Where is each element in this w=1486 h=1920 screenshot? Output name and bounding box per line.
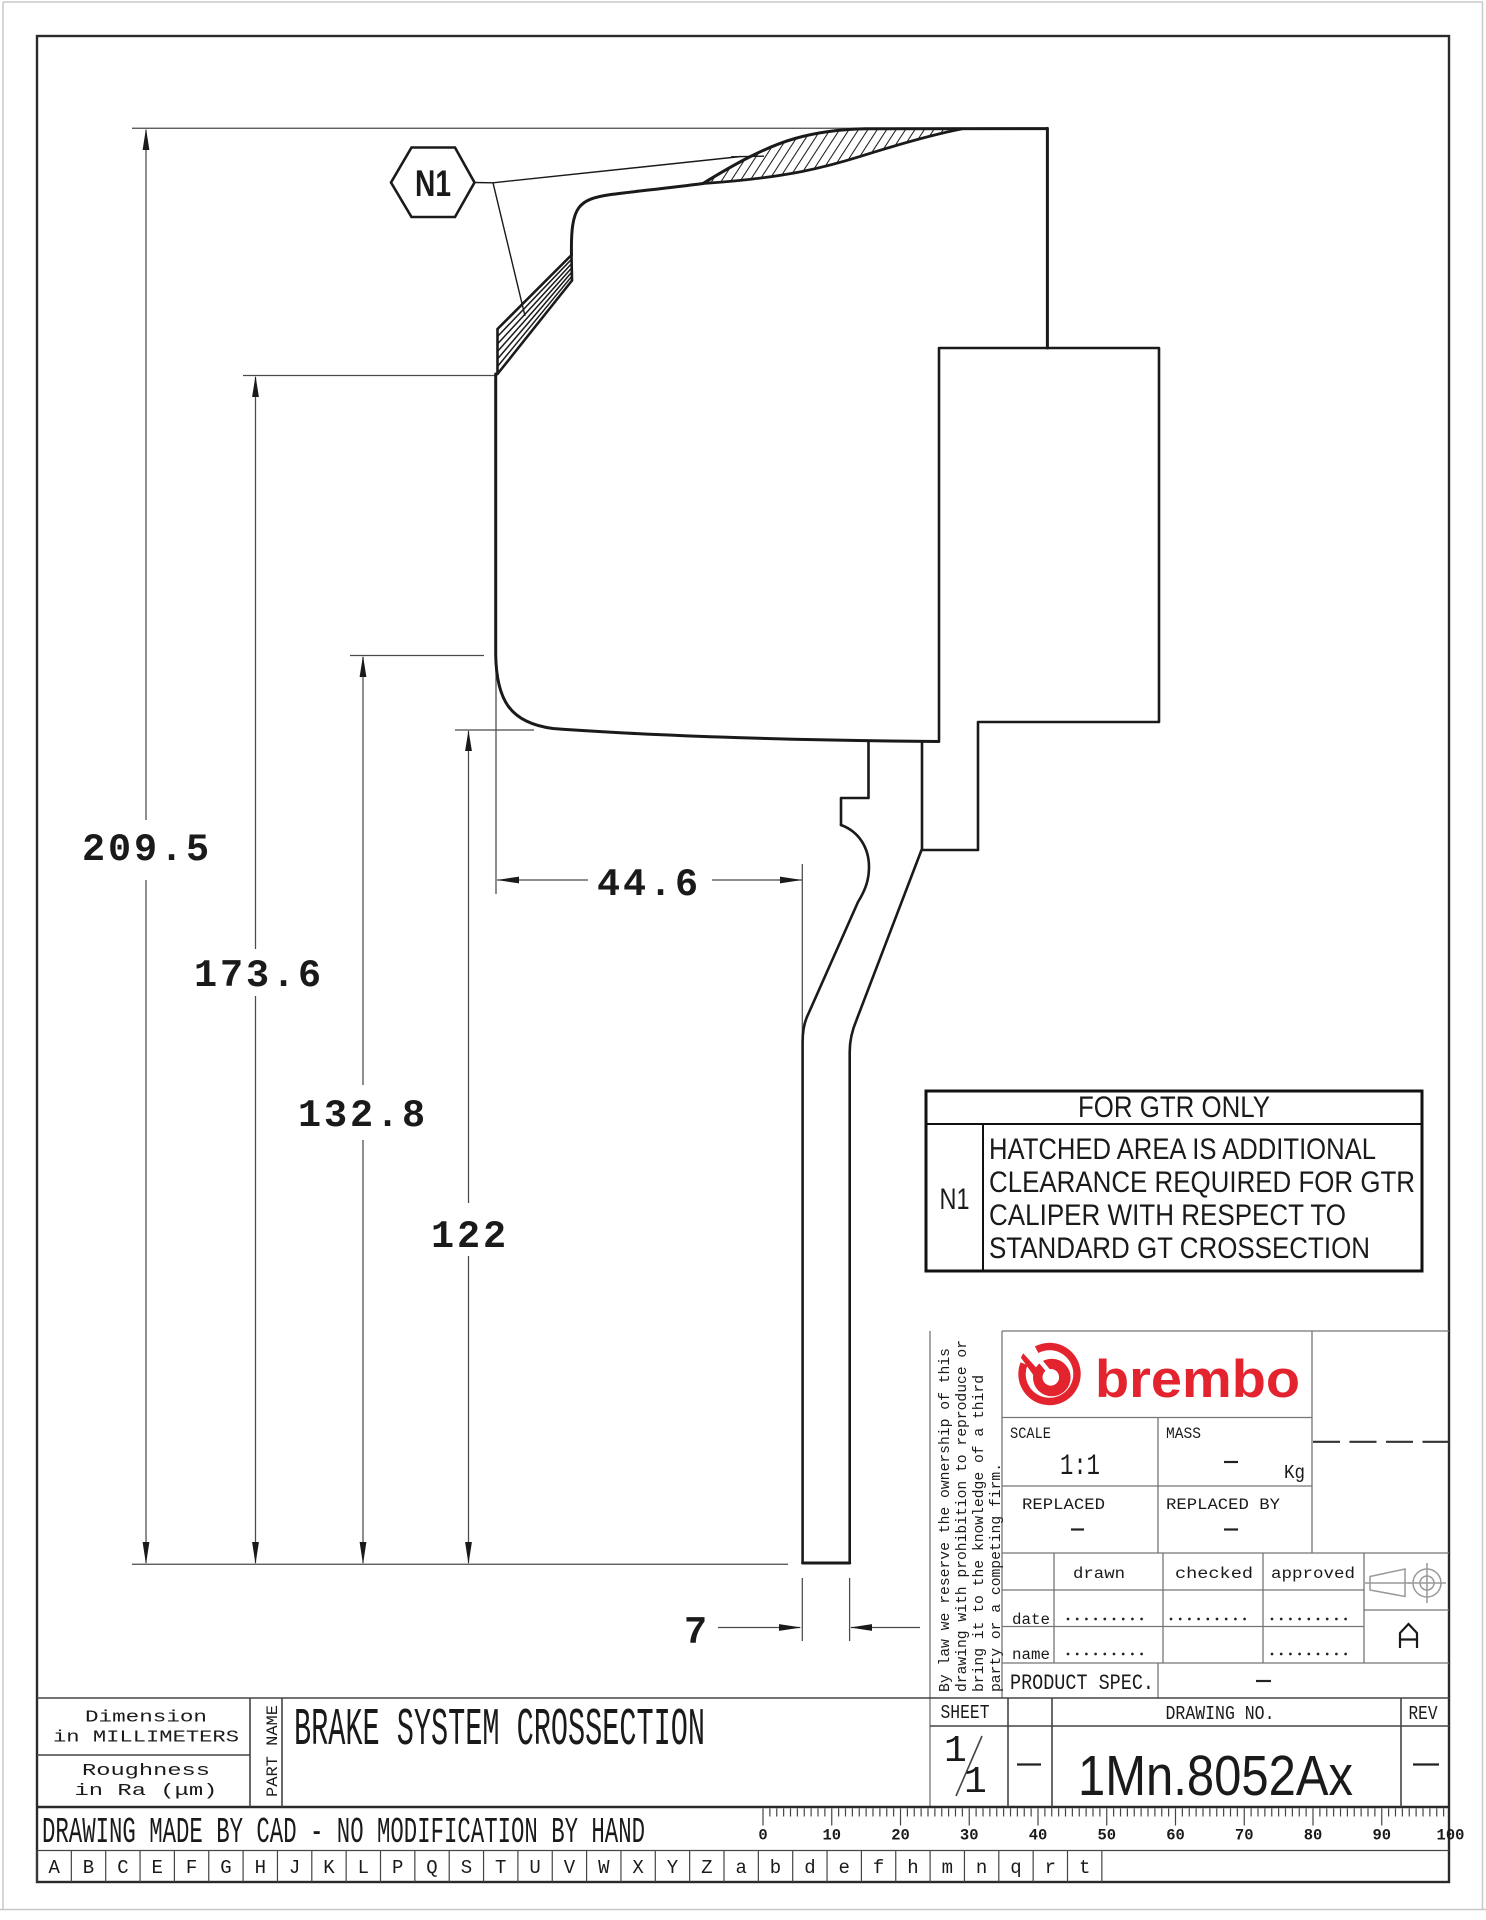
svg-text:209.5: 209.5 xyxy=(82,828,212,872)
svg-text:REPLACED: REPLACED xyxy=(1022,1496,1105,1514)
svg-text:44.6: 44.6 xyxy=(597,863,701,907)
svg-text:W: W xyxy=(598,1857,610,1879)
svg-text:DRAWING MADE BY CAD - NO MODIF: DRAWING MADE BY CAD - NO MODIFICATION BY… xyxy=(42,1812,645,1853)
svg-text:S: S xyxy=(461,1857,472,1879)
svg-text:By law we reserve the ownershi: By law we reserve the ownership of this xyxy=(938,1348,954,1692)
svg-text:40: 40 xyxy=(1029,1827,1048,1845)
svg-text:m: m xyxy=(942,1857,953,1879)
svg-text:122: 122 xyxy=(431,1215,509,1259)
svg-text:REV: REV xyxy=(1409,1703,1438,1725)
svg-text:f: f xyxy=(873,1857,884,1879)
svg-text:132.8: 132.8 xyxy=(298,1094,428,1138)
svg-text:SCALE: SCALE xyxy=(1010,1425,1051,1443)
svg-text:h: h xyxy=(907,1857,918,1879)
svg-text:Y: Y xyxy=(667,1857,679,1879)
svg-text:P: P xyxy=(392,1857,403,1879)
svg-text:E: E xyxy=(151,1857,162,1879)
svg-text:70: 70 xyxy=(1235,1827,1254,1845)
svg-text:t: t xyxy=(1079,1857,1090,1879)
svg-text:HATCHED AREA IS ADDITIONAL: HATCHED AREA IS ADDITIONAL xyxy=(989,1133,1376,1166)
svg-text:in Ra (μm): in Ra (μm) xyxy=(75,1782,218,1801)
svg-text:U: U xyxy=(529,1857,540,1879)
svg-text:q: q xyxy=(1010,1857,1021,1879)
svg-text:K: K xyxy=(323,1857,335,1879)
svg-text:A: A xyxy=(48,1857,60,1879)
svg-text:approved: approved xyxy=(1271,1565,1355,1583)
svg-text:PRODUCT SPEC.: PRODUCT SPEC. xyxy=(1010,1671,1154,1696)
svg-text:N1: N1 xyxy=(415,162,451,204)
svg-text:BRAKE SYSTEM CROSSECTION: BRAKE SYSTEM CROSSECTION xyxy=(294,1700,705,1760)
svg-text:name: name xyxy=(1012,1646,1050,1664)
svg-text:DRAWING NO.: DRAWING NO. xyxy=(1166,1703,1275,1725)
svg-text:173.6: 173.6 xyxy=(194,954,324,998)
svg-text:V: V xyxy=(564,1857,576,1879)
svg-text:CLEARANCE REQUIRED FOR GTR: CLEARANCE REQUIRED FOR GTR xyxy=(989,1166,1415,1199)
svg-text:drawn: drawn xyxy=(1073,1565,1125,1583)
svg-text:STANDARD GT CROSSECTION: STANDARD GT CROSSECTION xyxy=(989,1232,1370,1265)
svg-text:G: G xyxy=(220,1857,231,1879)
svg-text:date: date xyxy=(1012,1611,1050,1629)
svg-text:bring it to the knowledge of a: bring it to the knowledge of a third xyxy=(972,1375,988,1692)
svg-text:C: C xyxy=(117,1857,128,1879)
svg-text:d: d xyxy=(804,1857,815,1879)
svg-text:Dimension: Dimension xyxy=(85,1709,207,1728)
svg-text:10: 10 xyxy=(822,1827,841,1845)
svg-text:J: J xyxy=(289,1857,300,1879)
svg-text:Kg: Kg xyxy=(1284,1462,1305,1484)
svg-text:r: r xyxy=(1045,1857,1056,1879)
svg-text:checked: checked xyxy=(1175,1565,1253,1583)
svg-text:drawing with prohibition to re: drawing with prohibition to reproduce or xyxy=(955,1340,971,1692)
svg-text:90: 90 xyxy=(1372,1827,1391,1845)
svg-text:n: n xyxy=(976,1857,987,1879)
svg-text:brembo: brembo xyxy=(1095,1350,1300,1409)
svg-text:50: 50 xyxy=(1097,1827,1116,1845)
svg-text:B: B xyxy=(83,1857,94,1879)
svg-text:30: 30 xyxy=(960,1827,979,1845)
svg-text:e: e xyxy=(838,1857,849,1879)
svg-text:1:1: 1:1 xyxy=(1060,1450,1100,1484)
svg-text:Z: Z xyxy=(701,1857,712,1879)
svg-text:CALIPER WITH RESPECT TO: CALIPER WITH RESPECT TO xyxy=(989,1199,1346,1232)
svg-text:T: T xyxy=(495,1857,506,1879)
svg-text:80: 80 xyxy=(1304,1827,1323,1845)
svg-text:PART NAME: PART NAME xyxy=(264,1705,282,1797)
svg-text:100: 100 xyxy=(1437,1827,1465,1845)
svg-text:FOR GTR ONLY: FOR GTR ONLY xyxy=(1078,1091,1270,1124)
svg-text:X: X xyxy=(632,1857,644,1879)
svg-text:60: 60 xyxy=(1166,1827,1185,1845)
svg-text:1: 1 xyxy=(964,1761,987,1804)
svg-text:in MILLIMETERS: in MILLIMETERS xyxy=(53,1729,239,1748)
svg-text:REPLACED BY: REPLACED BY xyxy=(1166,1496,1281,1514)
svg-text:L: L xyxy=(358,1857,369,1879)
svg-text:SHEET: SHEET xyxy=(941,1702,990,1724)
svg-text:1Mn.8052Ax: 1Mn.8052Ax xyxy=(1078,1744,1353,1807)
svg-text:Roughness: Roughness xyxy=(82,1762,210,1781)
svg-text:F: F xyxy=(186,1857,197,1879)
svg-text:0: 0 xyxy=(758,1827,767,1845)
svg-text:a: a xyxy=(735,1857,746,1879)
svg-text:H: H xyxy=(255,1857,266,1879)
svg-text:b: b xyxy=(770,1857,781,1879)
svg-text:N1: N1 xyxy=(940,1183,970,1216)
svg-text:party or a competing firm.: party or a competing firm. xyxy=(989,1463,1005,1692)
svg-text:7: 7 xyxy=(684,1611,710,1655)
svg-text:Q: Q xyxy=(426,1857,437,1879)
svg-text:MASS: MASS xyxy=(1166,1425,1201,1443)
svg-text:20: 20 xyxy=(891,1827,910,1845)
